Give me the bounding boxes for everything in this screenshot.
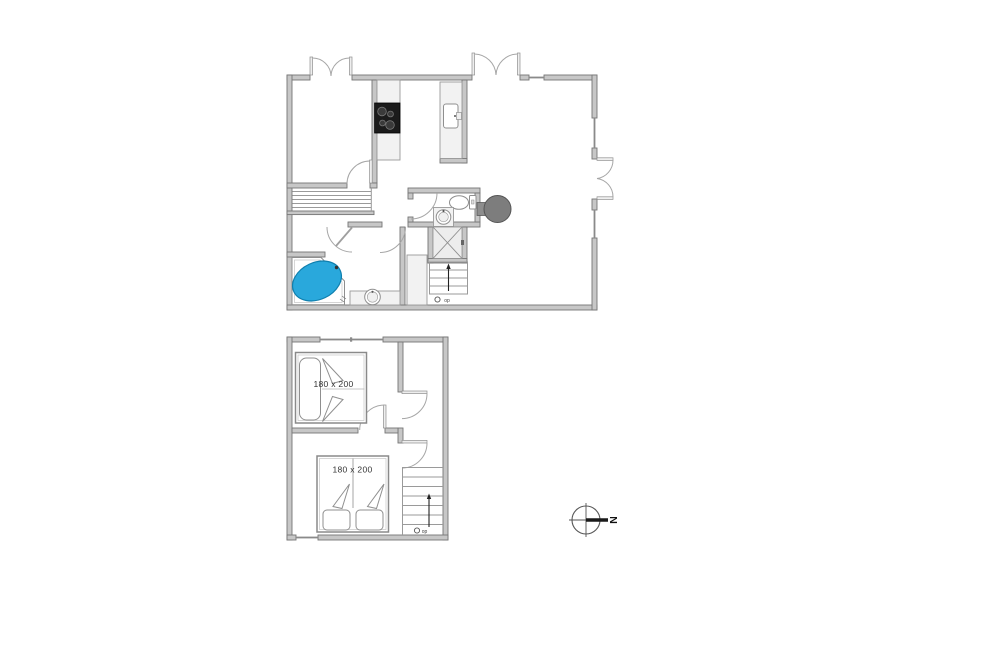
landing-door-lower <box>402 440 427 468</box>
closet <box>407 255 427 305</box>
window <box>529 77 544 79</box>
window <box>296 537 318 539</box>
stairs-direction-label: op <box>444 298 450 304</box>
stairs-marker <box>435 297 440 302</box>
staircase-ground: op <box>430 262 468 304</box>
washbasin-icon <box>434 208 454 227</box>
shower-cabin <box>428 227 467 263</box>
first-floor-plan: 180 x 200 180 x 200 op <box>287 337 448 540</box>
window <box>594 210 596 238</box>
bed-double-south: 180 x 200 <box>317 456 389 532</box>
bed-size-label: 180 x 200 <box>313 379 353 389</box>
landing-door-upper <box>402 391 427 419</box>
pillow <box>323 510 350 530</box>
floor-plan-canvas: op <box>0 0 1000 667</box>
pillow <box>356 510 383 530</box>
vanity-sink <box>350 289 400 305</box>
entry-door-right <box>472 53 520 75</box>
corner-bathtub <box>286 253 348 308</box>
floor-plan-page: op <box>0 0 1000 667</box>
wood-stove-icon <box>477 196 511 223</box>
staircase-first: op <box>403 467 444 535</box>
slatted-stairs <box>293 188 372 211</box>
bed-size-label: 180 x 200 <box>332 465 372 475</box>
windows <box>529 77 595 238</box>
cooktop-icon <box>375 103 400 133</box>
ground-floor-plan: op <box>286 53 613 310</box>
room1-door <box>347 160 372 184</box>
stairs-direction-label: op <box>422 529 428 535</box>
pillow <box>300 358 321 420</box>
bathroom-doors <box>327 227 406 253</box>
kitchen-island <box>440 80 467 163</box>
kitchen-counter <box>375 80 400 160</box>
entry-door-left <box>310 57 352 76</box>
bed-double-north: 180 x 200 <box>296 353 367 424</box>
north-label: N <box>607 516 619 524</box>
stairs-marker <box>414 528 419 533</box>
terrace-door-east <box>597 158 613 200</box>
compass-icon: N <box>569 503 619 537</box>
wc-room <box>408 188 480 227</box>
window <box>594 118 596 148</box>
